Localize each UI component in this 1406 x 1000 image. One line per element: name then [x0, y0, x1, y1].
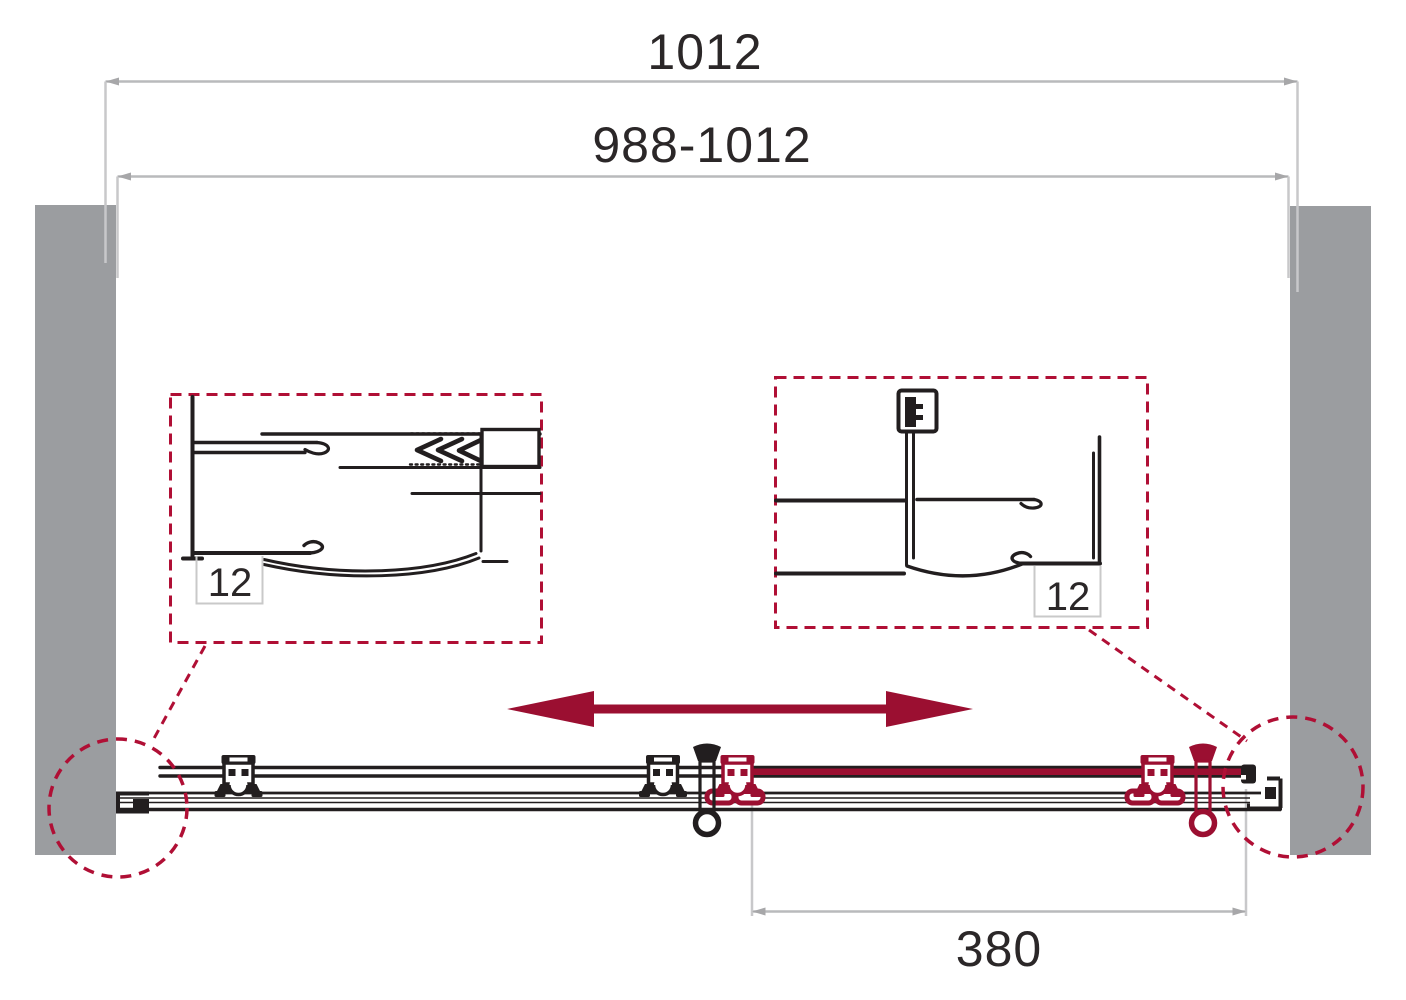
rail-end-cap — [1241, 765, 1256, 784]
leader-left — [152, 646, 205, 742]
overall-width-label: 1012 — [647, 27, 762, 77]
dimension-overall-width — [106, 78, 1298, 293]
slide-direction-arrow-icon — [507, 691, 973, 727]
detail-right-profile-drawing — [776, 391, 1100, 576]
glass-thickness-label-left: 12 — [208, 563, 253, 603]
adjustment-serration-chevrons — [417, 439, 481, 461]
installation-diagram: 1012 988-1012 380 12 12 — [0, 0, 1406, 1000]
detail-view-left — [171, 395, 542, 643]
dimension-adjustment-range — [118, 173, 1289, 279]
door-travel-label: 380 — [956, 924, 1042, 974]
right-wall — [1290, 206, 1371, 855]
left-wall — [35, 205, 116, 855]
detail-view-right — [776, 378, 1148, 628]
door-assembly-plan — [117, 744, 1282, 835]
detail-leader-lines — [152, 630, 1247, 742]
glass-thickness-label-right: 12 — [1046, 577, 1091, 617]
detail-left-profile-drawing — [183, 397, 540, 576]
leader-right — [1089, 630, 1247, 741]
adjustment-range-label: 988-1012 — [592, 120, 811, 170]
knob-sliding-panel — [1189, 744, 1217, 835]
